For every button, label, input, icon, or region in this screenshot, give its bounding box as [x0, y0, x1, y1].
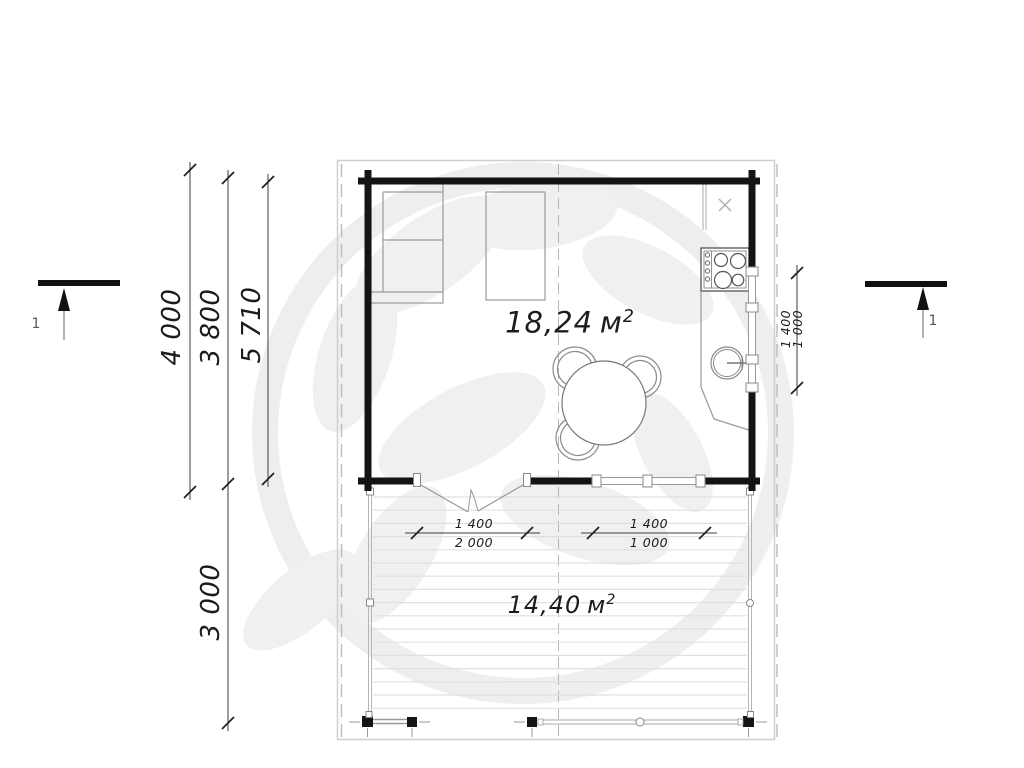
dim-terrace-depth: 3 000: [198, 564, 224, 641]
terrace-front-rail-left: [373, 720, 408, 724]
dim-door-width: 1 400: [455, 518, 493, 531]
section-marker-right: [865, 281, 947, 338]
dim-left-inner: 3 800: [198, 289, 224, 366]
stove-icon: [701, 248, 749, 291]
section-marker-left: [38, 280, 120, 340]
round-table: [562, 361, 646, 445]
floor-plan-drawing: [0, 0, 1024, 768]
dim-left-outer: 4 000: [159, 289, 185, 366]
dim-door-opening: 2 000: [455, 537, 493, 550]
section-label-right: 1: [929, 314, 938, 328]
section-label-left: 1: [32, 317, 41, 331]
vent-x-icon: [719, 199, 731, 211]
terrace-area-label: 14,40 м2: [508, 593, 617, 617]
dim-side-window: 1 400 1 000: [780, 310, 804, 348]
leaf-logo-watermark: [227, 170, 781, 691]
dim-terrace-window-width: 1 400: [630, 518, 668, 531]
floor-plan-canvas: 18,24 м2 14,40 м2 4 000 3 800 5 710 3 00…: [0, 0, 1024, 768]
dim-left-total: 5 710: [239, 287, 265, 364]
room-area-label: 18,24 м2: [505, 309, 635, 338]
dim-terrace-window-height: 1 000: [630, 537, 668, 550]
